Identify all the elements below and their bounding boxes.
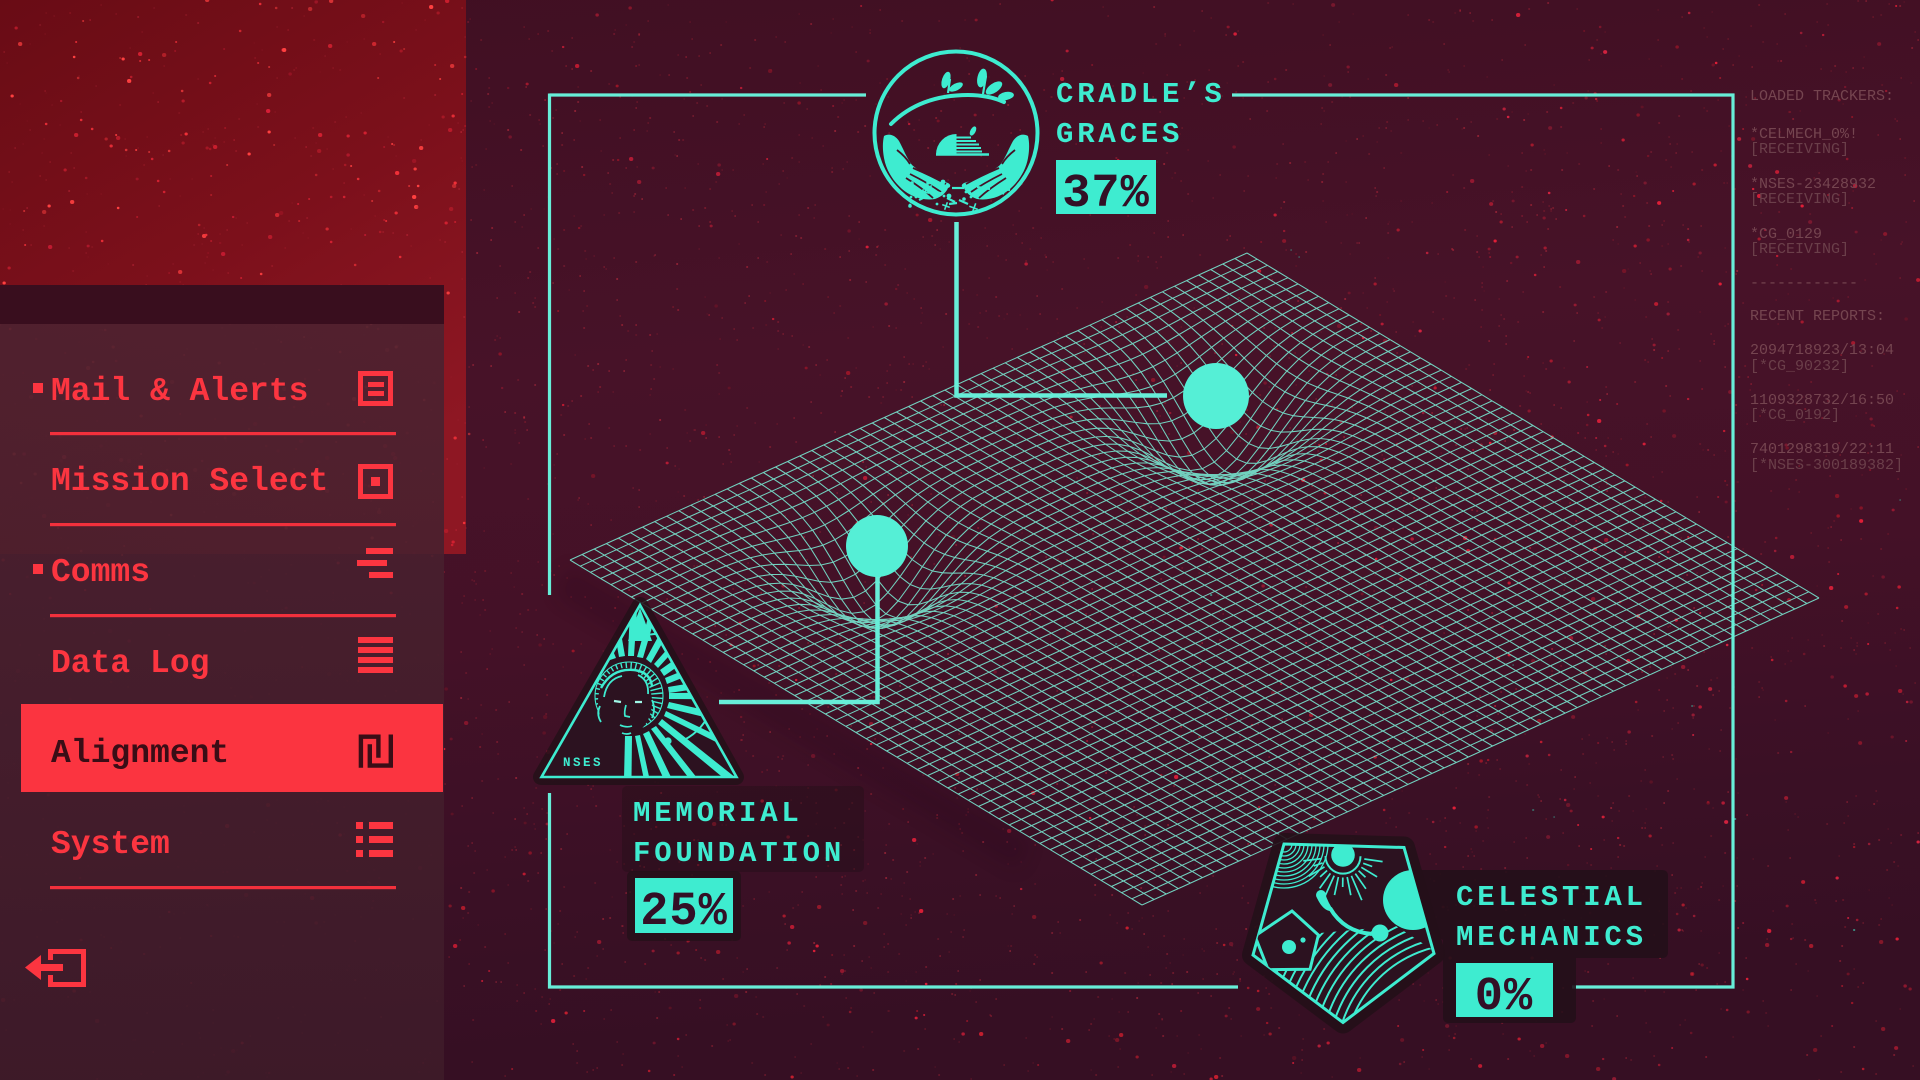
svg-text:CRADLE’S: CRADLE’S	[1056, 78, 1226, 111]
svg-text:[RECEIVING]: [RECEIVING]	[1750, 191, 1849, 208]
svg-text:[RECEIVING]: [RECEIVING]	[1750, 241, 1849, 258]
svg-text:CELESTIAL: CELESTIAL	[1456, 881, 1647, 914]
svg-text:7401298319/22:11: 7401298319/22:11	[1750, 441, 1894, 458]
svg-text:Data Log: Data Log	[51, 645, 209, 682]
svg-text:[*NSES-300189382]: [*NSES-300189382]	[1750, 457, 1903, 474]
svg-text:Mail & Alerts: Mail & Alerts	[51, 373, 308, 410]
svg-text:25%: 25%	[640, 886, 728, 939]
svg-text:------------: ------------	[1750, 275, 1858, 292]
svg-text:NSES: NSES	[563, 756, 603, 770]
svg-text:FOUNDATION: FOUNDATION	[633, 837, 845, 870]
svg-text:System: System	[51, 826, 170, 863]
svg-text:GRACES: GRACES	[1056, 118, 1183, 151]
svg-text:Comms: Comms	[51, 554, 150, 591]
svg-text:[*CG_0192]: [*CG_0192]	[1750, 407, 1840, 424]
svg-text:MECHANICS: MECHANICS	[1456, 921, 1647, 954]
svg-text:2094718923/13:04: 2094718923/13:04	[1750, 342, 1894, 359]
svg-text:0%: 0%	[1475, 971, 1533, 1024]
svg-text:MEMORIAL: MEMORIAL	[633, 797, 803, 830]
svg-text:[*CG_90232]: [*CG_90232]	[1750, 358, 1849, 375]
svg-text:[RECEIVING]: [RECEIVING]	[1750, 141, 1849, 158]
svg-text:LOADED TRACKERS:: LOADED TRACKERS:	[1750, 88, 1894, 105]
svg-text:RECENT REPORTS:: RECENT REPORTS:	[1750, 308, 1885, 325]
svg-text:Mission Select: Mission Select	[51, 463, 328, 500]
svg-text:Alignment: Alignment	[51, 735, 229, 772]
svg-text:37%: 37%	[1062, 168, 1150, 221]
